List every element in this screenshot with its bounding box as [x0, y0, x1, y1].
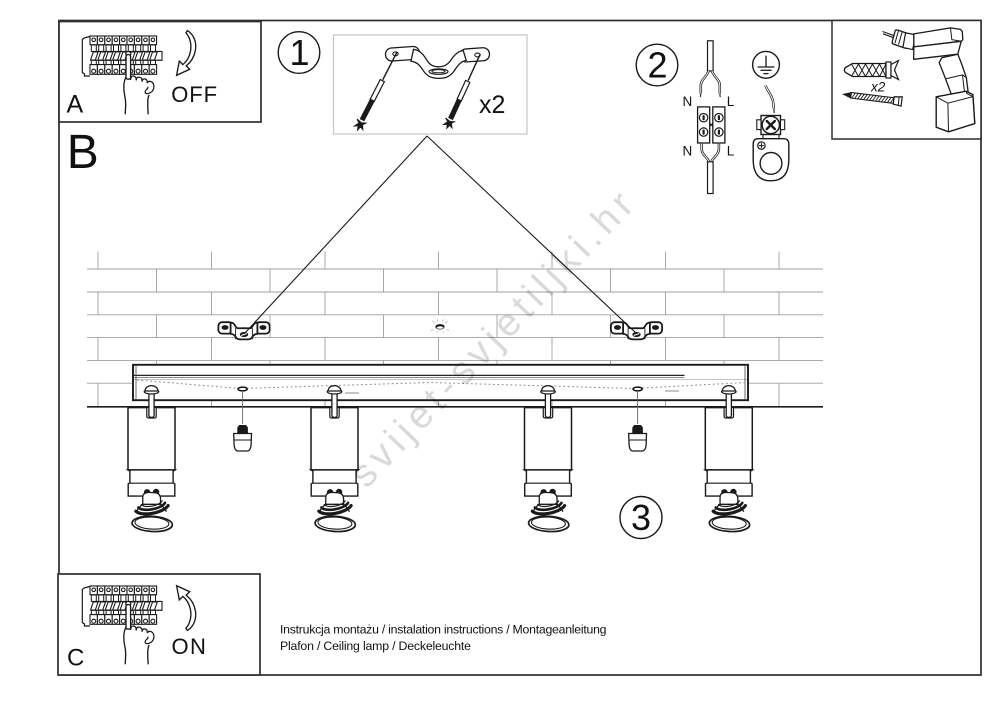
svg-text:N: N	[683, 94, 693, 109]
svg-text:L: L	[727, 94, 735, 109]
svg-text:x2: x2	[870, 80, 886, 95]
svg-text:L: L	[727, 143, 735, 158]
svg-text:C: C	[67, 644, 84, 671]
svg-text:1: 1	[289, 32, 309, 73]
svg-text:Plafon / Ceiling lamp / Deckel: Plafon / Ceiling lamp / Deckeleuchte	[280, 639, 471, 653]
svg-text:x2: x2	[479, 91, 505, 119]
svg-text:A: A	[67, 91, 84, 119]
svg-text:Instrukcja montażu / instalati: Instrukcja montażu / instalation instruc…	[280, 623, 607, 637]
svg-text:2: 2	[647, 45, 667, 86]
svg-text:N: N	[683, 143, 693, 158]
svg-text:OFF: OFF	[171, 82, 218, 107]
svg-text:3: 3	[631, 497, 651, 538]
svg-text:ON: ON	[172, 634, 208, 659]
svg-text:B: B	[67, 125, 99, 179]
